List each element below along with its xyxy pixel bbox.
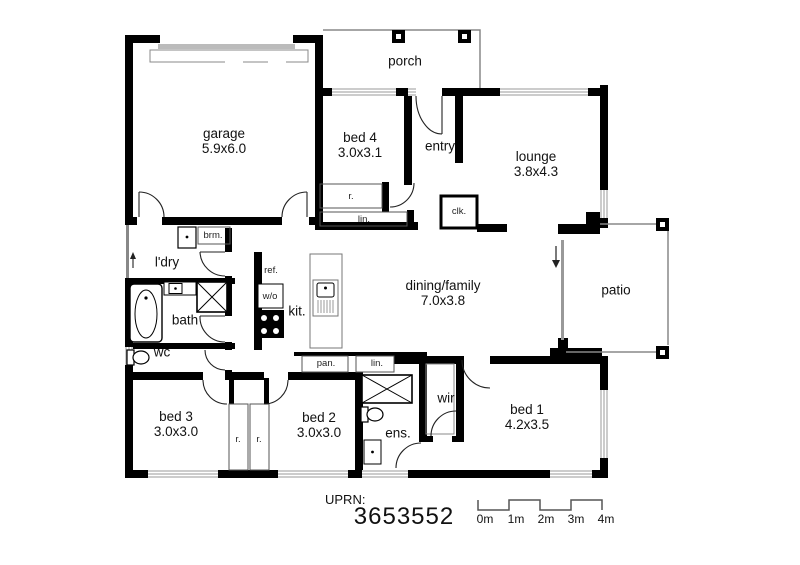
door-bath (200, 316, 225, 342)
room-label-laundry: l'dry (155, 255, 179, 270)
room-label-porch: porch (388, 54, 422, 69)
room-label-wir: wir (437, 391, 454, 406)
window-bed1-right (600, 390, 608, 458)
room-label-dining: dining/family7.0x3.8 (405, 278, 480, 308)
room-label-patio: patio (601, 283, 630, 298)
door-laundry (200, 252, 225, 276)
label-linen-bed4: lin. (358, 215, 370, 225)
door-garage-hall (282, 192, 307, 217)
patio-post-icon (656, 346, 669, 359)
room-label-bed2: bed 23.0x3.0 (297, 410, 341, 440)
scale-tick-3m: 3m (568, 512, 585, 526)
island-bench (310, 254, 342, 348)
door-laundry-external-arrow-icon (130, 252, 136, 268)
garage-door (150, 44, 308, 64)
door-bed1 (462, 360, 490, 388)
door-garage-laundry (139, 192, 164, 217)
window-lounge-top (500, 88, 588, 96)
window-bed3 (148, 470, 218, 478)
toilet-ens-icon (361, 407, 383, 422)
window-entry-sidelight (408, 88, 416, 96)
floorplan-page: garage5.9x6.0 porch bed 43.0x3.1 entry l… (0, 0, 800, 565)
uprn-value: 3653552 (354, 503, 454, 531)
porch-post-icon (392, 30, 405, 43)
vanity-ens-icon (364, 440, 381, 464)
toilet-wc-icon (127, 350, 149, 365)
door-ens (396, 443, 421, 468)
room-label-lounge: lounge3.8x4.3 (514, 149, 558, 179)
scale-tick-0m: 0m (477, 512, 494, 526)
scale-tick-1m: 1m (508, 512, 525, 526)
laundry-trough-icon (178, 227, 196, 248)
scale-tick-2m: 2m (538, 512, 555, 526)
shower-ens-icon (362, 375, 412, 403)
door-wir (431, 411, 456, 436)
window-ens (362, 470, 408, 478)
door-entry-front (416, 96, 442, 134)
label-cloak: clk. (452, 207, 466, 217)
bathtub-icon (130, 284, 162, 342)
label-robe-bed4: r. (348, 192, 353, 202)
room-label-bed1: bed 14.2x3.5 (505, 402, 549, 432)
room-label-entry: entry (425, 139, 455, 154)
sink-icon (313, 280, 338, 316)
scale-bar (478, 500, 602, 510)
door-bed4 (390, 183, 414, 207)
patio-post-icon (656, 218, 669, 231)
room-label-bath: bath (172, 313, 198, 328)
label-robe-bed3: r. (235, 435, 240, 445)
room-label-ens: ens. (385, 426, 411, 441)
room-label-wc: wc (154, 345, 171, 360)
label-pantry: pan. (317, 359, 336, 369)
label-wall-oven: w/o (263, 292, 278, 302)
window-bed4 (332, 88, 396, 96)
window-bed1-bottom (550, 470, 592, 478)
room-label-bed4: bed 43.0x3.1 (338, 130, 382, 160)
window-lounge-right (600, 190, 608, 218)
floorplan-drawing (0, 0, 800, 565)
label-fridge: ref. (264, 266, 278, 276)
window-bed2 (278, 470, 348, 478)
room-label-garage: garage5.9x6.0 (202, 126, 246, 156)
door-wc (205, 350, 225, 370)
stove-icon (256, 310, 284, 338)
label-linen-hall: lin. (371, 359, 383, 369)
label-broom: brm. (204, 231, 223, 241)
scale-tick-4m: 4m (598, 512, 615, 526)
room-label-kitchen: kit. (288, 304, 305, 319)
label-robe-bed2: r. (256, 435, 261, 445)
vanity-bath-icon (164, 282, 196, 295)
shower-bath-icon (197, 282, 227, 312)
room-label-bed3: bed 33.0x3.0 (154, 409, 198, 439)
door-direction-arrow-icon (552, 246, 560, 268)
door-bed3 (203, 380, 227, 404)
porch-post-icon (458, 30, 471, 43)
